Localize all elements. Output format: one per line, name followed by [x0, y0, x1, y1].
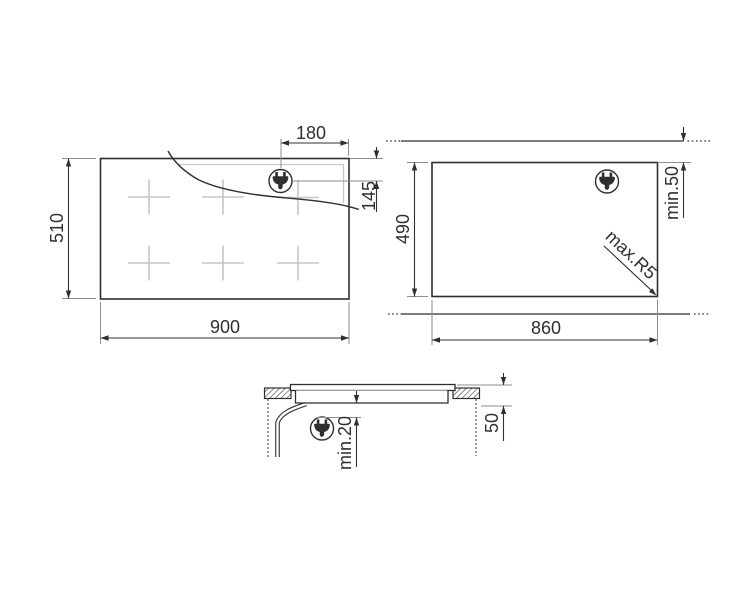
burner-cross [202, 180, 244, 215]
break-line [168, 151, 359, 210]
dim-plug-below-top: 145 [293, 147, 383, 212]
hob-body-section [296, 391, 449, 404]
dim-recess-depth: 50 [457, 373, 512, 441]
worktop-cutout-view: 490 860 min.50 max.R5 [386, 127, 711, 345]
arrowhead [650, 337, 658, 342]
dim-label-min50: min.50 [662, 166, 682, 220]
dim-cutout-width: 860 [432, 300, 658, 345]
plug-prong [325, 420, 328, 425]
arrowhead [681, 133, 686, 141]
arrowhead [501, 377, 506, 385]
cable-outer [278, 404, 307, 457]
corner-radius-callout: max.R5 [602, 226, 661, 295]
dim-hob-depth: 510 [47, 159, 96, 299]
dim-hob-width: 900 [101, 302, 350, 344]
dim-label-510: 510 [47, 213, 67, 243]
installation-drawing: 180 145 510 900 [0, 0, 750, 600]
dim-cutout-depth: 490 [393, 163, 428, 297]
arrowhead [341, 335, 349, 340]
hob-glass-section [291, 385, 456, 391]
arrowhead [66, 291, 71, 299]
plug-prong [317, 420, 320, 425]
power-plug-icon [596, 170, 619, 193]
hob-outline [101, 159, 350, 300]
dim-label-180: 180 [296, 123, 326, 143]
cutout-outline [432, 163, 658, 297]
plug-prong [275, 172, 278, 177]
burner-cross [128, 180, 170, 215]
worktop-section-right [453, 388, 480, 399]
power-plug-icon [269, 170, 292, 193]
drawing-canvas: 180 145 510 900 [0, 0, 750, 600]
plug-prong [610, 173, 613, 178]
plug-prong [283, 172, 286, 177]
arrowhead [341, 140, 349, 145]
arrowhead [432, 337, 440, 342]
dim-label-50: 50 [482, 413, 502, 433]
plug-prong [602, 173, 605, 178]
burner-cross [277, 246, 319, 281]
arrowhead [412, 289, 417, 297]
burner-cross [202, 246, 244, 281]
hob-top-view: 180 145 510 900 [47, 123, 383, 344]
dim-plug-from-right: 180 [281, 123, 349, 168]
arrowhead [501, 406, 506, 414]
arrowhead [412, 163, 417, 171]
dim-label-145: 145 [359, 181, 379, 211]
worktop-section-left [265, 388, 292, 399]
burner-cross [128, 246, 170, 281]
power-plug-icon [311, 417, 334, 440]
arrowhead [66, 159, 71, 167]
burner-cross-marks [128, 180, 319, 281]
dim-label-900: 900 [210, 317, 240, 337]
power-cable [278, 404, 307, 457]
dim-label-maxR5: max.R5 [602, 226, 661, 283]
arrowhead [281, 140, 289, 145]
side-section-view: min.20 50 [265, 373, 513, 470]
arrowhead [101, 335, 109, 340]
dim-label-490: 490 [393, 214, 413, 244]
dim-label-860: 860 [531, 318, 561, 338]
arrowhead [374, 151, 379, 159]
dim-label-min20: min.20 [335, 416, 355, 470]
